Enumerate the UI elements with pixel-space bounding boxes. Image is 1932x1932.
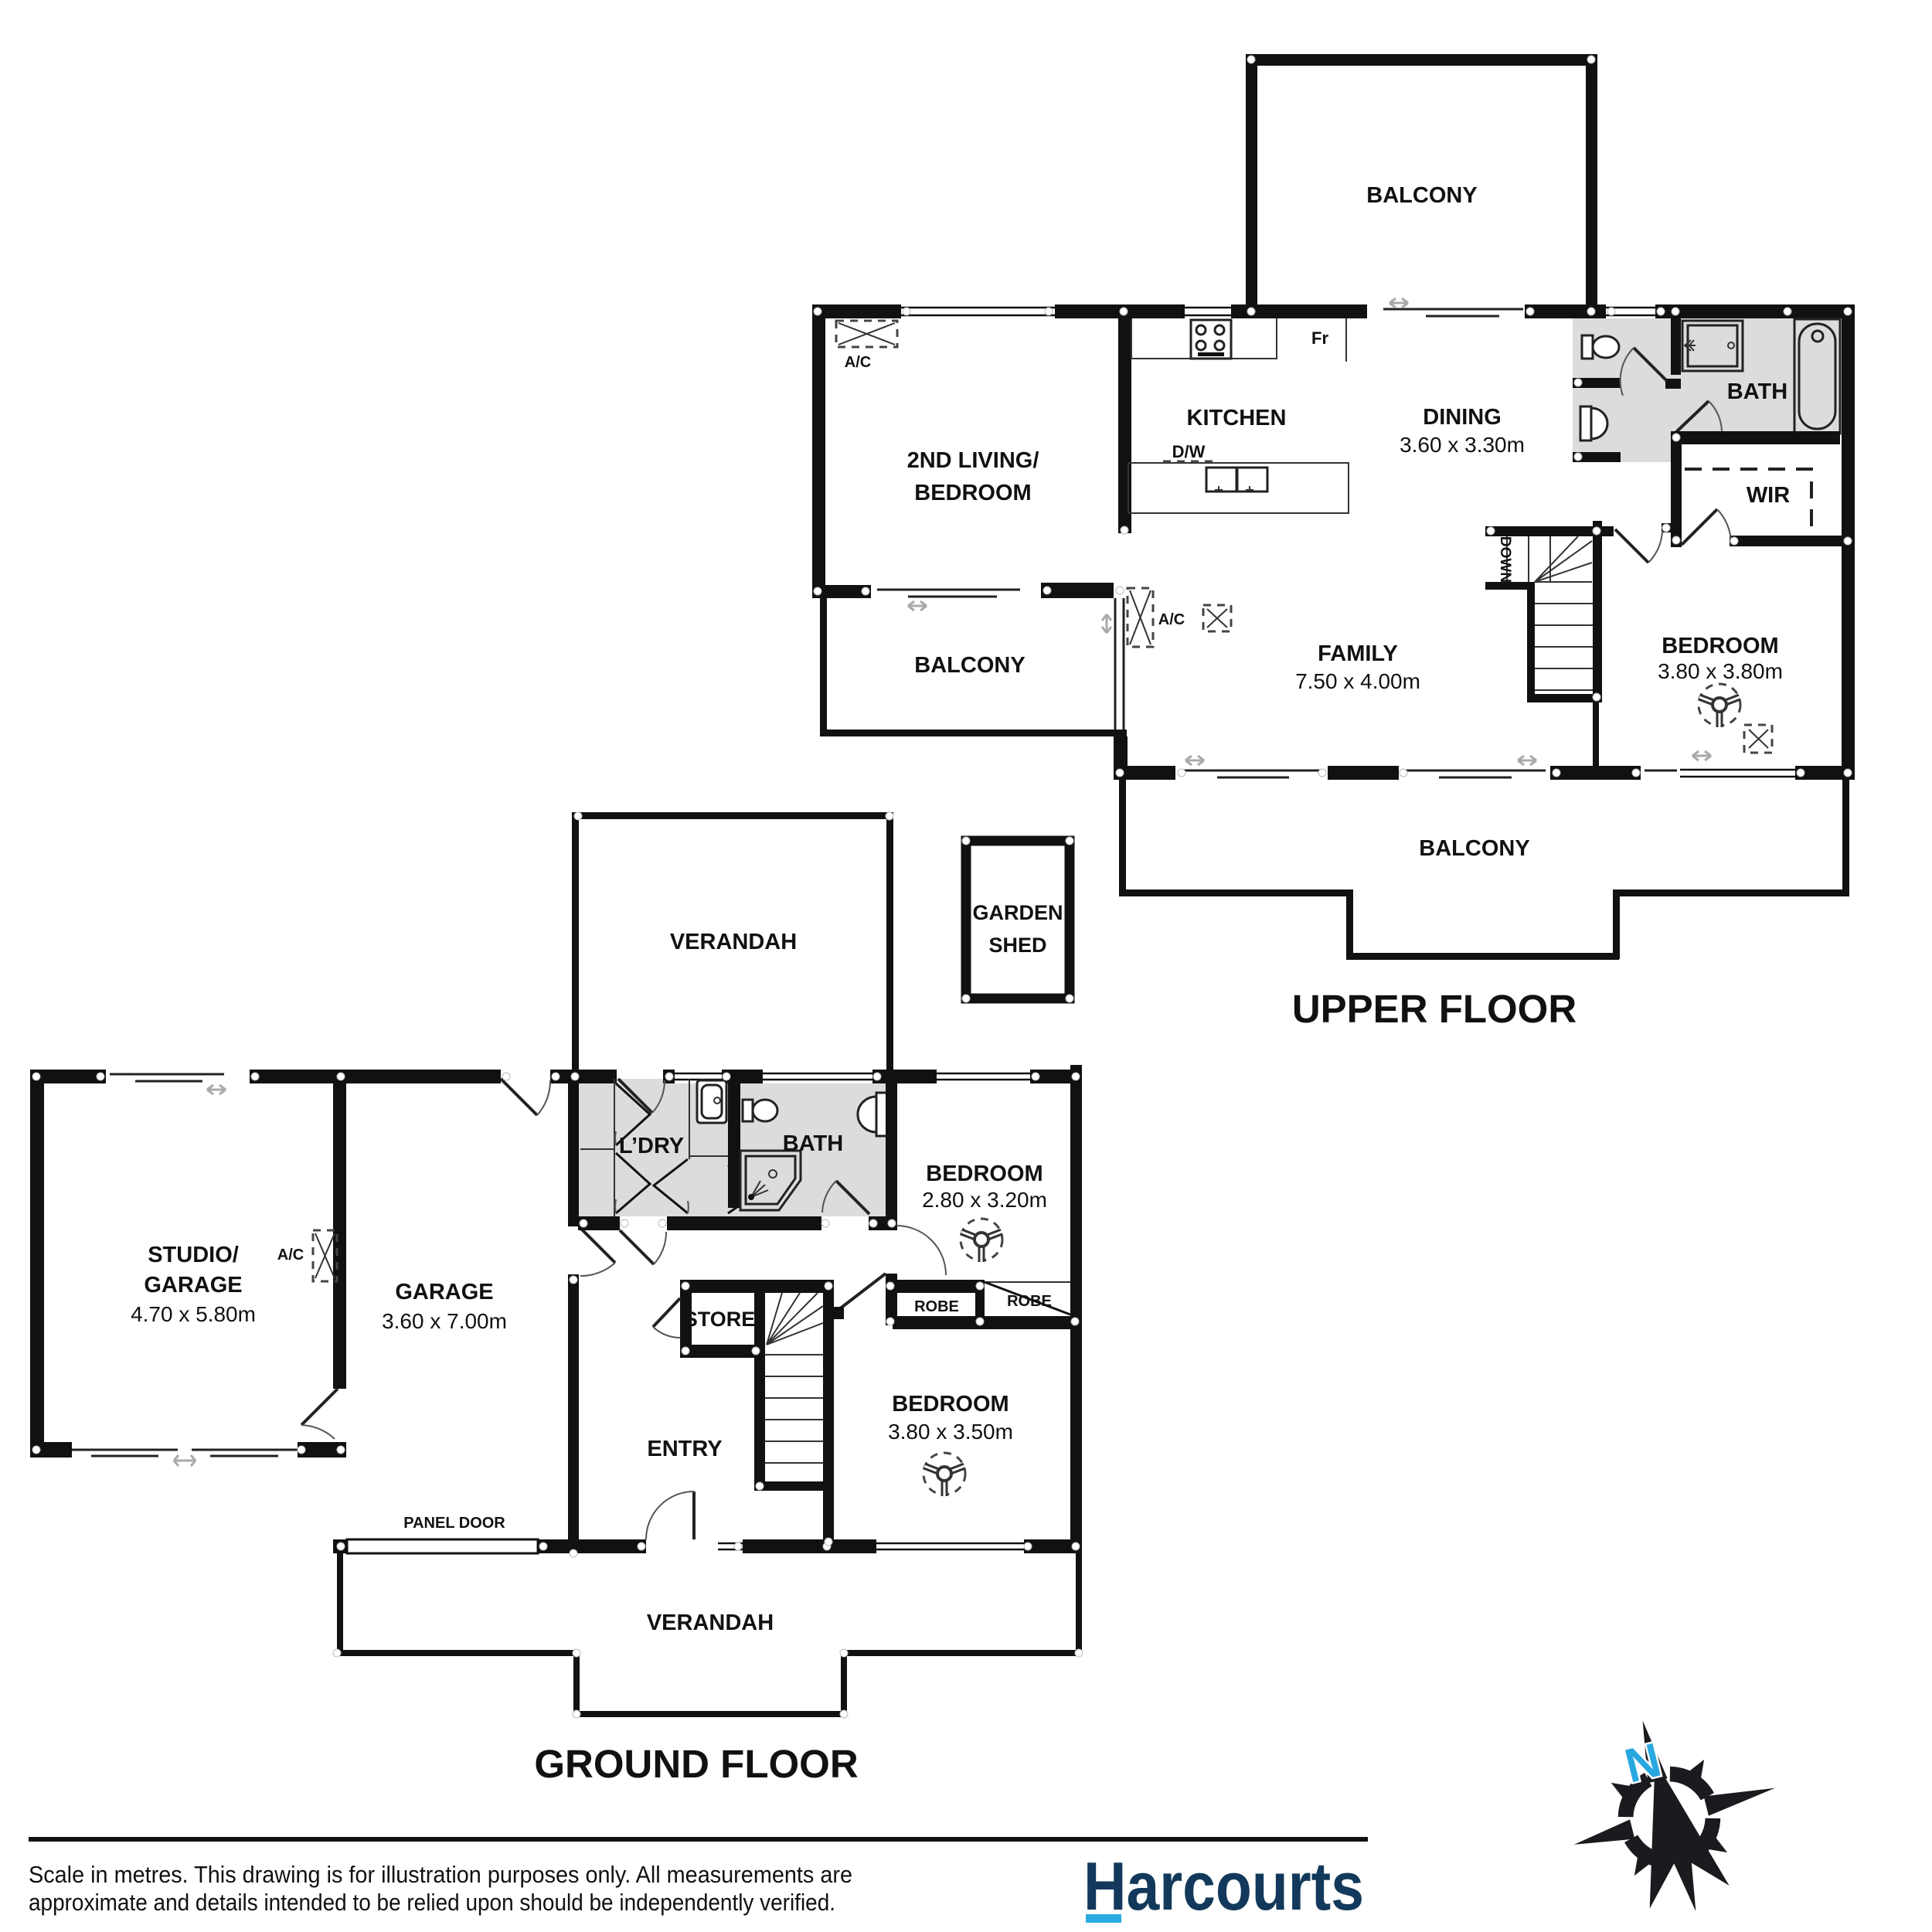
svg-text:3.80 x 3.50m: 3.80 x 3.50m xyxy=(888,1420,1013,1444)
svg-text:BALCONY: BALCONY xyxy=(1366,183,1477,208)
svg-text:DINING: DINING xyxy=(1423,405,1502,430)
svg-text:Harcourts: Harcourts xyxy=(1083,1848,1364,1924)
svg-text:ROBE: ROBE xyxy=(914,1298,959,1315)
svg-text:UPPER FLOOR: UPPER FLOOR xyxy=(1292,987,1577,1031)
svg-text:GARDEN: GARDEN xyxy=(972,901,1063,924)
svg-text:GARAGE: GARAGE xyxy=(144,1273,242,1298)
svg-text:3.60 x 3.30m: 3.60 x 3.30m xyxy=(1400,433,1525,457)
svg-text:BALCONY: BALCONY xyxy=(914,653,1025,678)
svg-text:ENTRY: ENTRY xyxy=(647,1437,722,1461)
svg-text:A/C: A/C xyxy=(845,354,871,371)
svg-text:GROUND FLOOR: GROUND FLOOR xyxy=(534,1742,858,1786)
svg-text:WIR: WIR xyxy=(1747,483,1790,508)
svg-text:FAMILY: FAMILY xyxy=(1318,641,1398,666)
svg-text:DOWN: DOWN xyxy=(1497,536,1513,583)
svg-text:BATH: BATH xyxy=(1727,379,1787,404)
svg-text:STUDIO/: STUDIO/ xyxy=(148,1243,239,1267)
svg-text:STORE: STORE xyxy=(684,1308,756,1331)
svg-text:3.60 x 7.00m: 3.60 x 7.00m xyxy=(382,1309,507,1333)
svg-text:2.80 x 3.20m: 2.80 x 3.20m xyxy=(922,1188,1047,1212)
svg-text:approximate and details intend: approximate and details intended to be r… xyxy=(29,1889,835,1916)
svg-text:KITCHEN: KITCHEN xyxy=(1187,406,1287,430)
svg-text:BEDROOM: BEDROOM xyxy=(926,1162,1043,1186)
svg-text:SHED: SHED xyxy=(988,934,1046,957)
svg-text:2ND LIVING/: 2ND LIVING/ xyxy=(907,448,1039,473)
svg-text:A/C: A/C xyxy=(277,1247,304,1264)
svg-text:GARAGE: GARAGE xyxy=(395,1280,493,1304)
svg-text:3.80 x 3.80m: 3.80 x 3.80m xyxy=(1658,659,1783,683)
svg-text:VERANDAH: VERANDAH xyxy=(670,930,797,954)
svg-text:4.70 x 5.80m: 4.70 x 5.80m xyxy=(131,1302,256,1326)
svg-text:7.50 x 4.00m: 7.50 x 4.00m xyxy=(1295,669,1420,693)
svg-text:PANEL DOOR: PANEL DOOR xyxy=(403,1515,505,1532)
svg-text:VERANDAH: VERANDAH xyxy=(647,1611,774,1635)
svg-text:BALCONY: BALCONY xyxy=(1419,836,1529,861)
svg-text:D/W: D/W xyxy=(1172,442,1206,461)
svg-text:Scale in metres. This drawing: Scale in metres. This drawing is for ill… xyxy=(29,1861,852,1888)
svg-text:BATH: BATH xyxy=(783,1131,843,1156)
svg-text:A/C: A/C xyxy=(1158,611,1185,628)
svg-text:BEDROOM: BEDROOM xyxy=(914,481,1031,505)
svg-text:Fr: Fr xyxy=(1311,328,1328,348)
svg-text:ROBE: ROBE xyxy=(1007,1293,1052,1310)
svg-text:L’DRY: L’DRY xyxy=(619,1134,684,1158)
svg-text:BEDROOM: BEDROOM xyxy=(1662,634,1778,658)
svg-text:BEDROOM: BEDROOM xyxy=(892,1392,1009,1417)
